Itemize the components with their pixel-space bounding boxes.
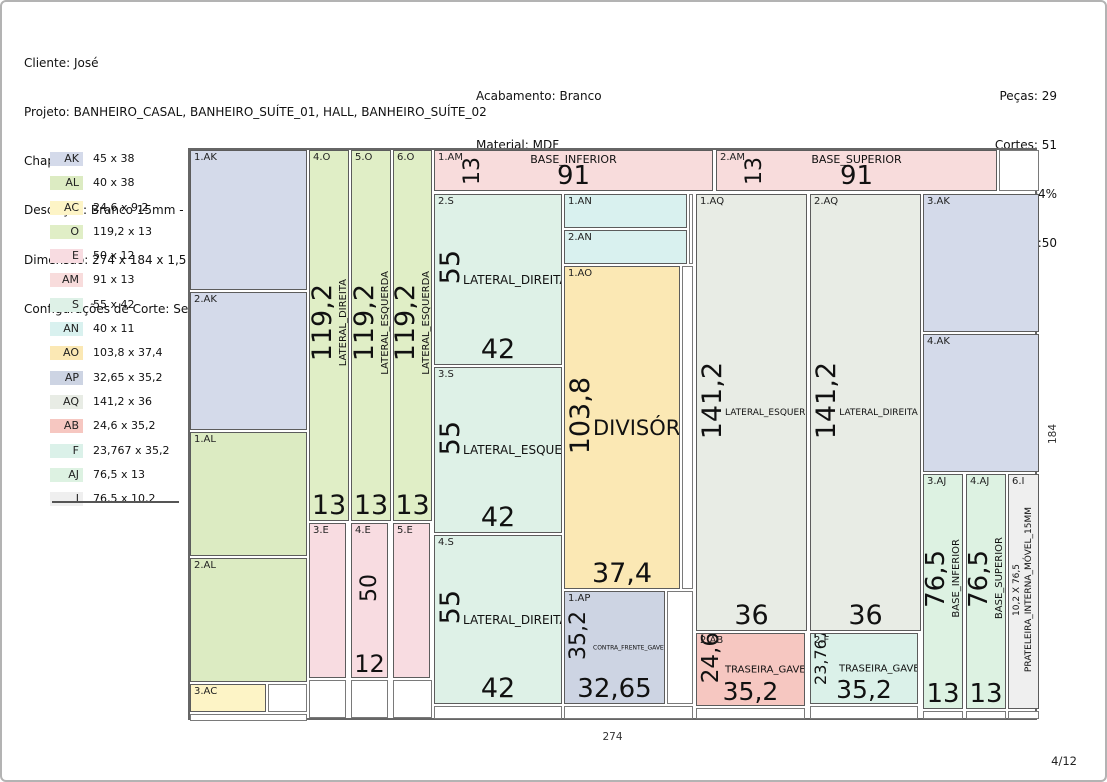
rotated-label: 119,2	[393, 284, 420, 361]
piece-code: 1.AO	[568, 268, 592, 279]
piece-code: 1.AL	[194, 434, 216, 445]
legend-swatch-o: O	[50, 225, 83, 239]
pieces-count-line: Peças: 29	[880, 88, 1057, 104]
piece-dim-vertical: 55	[437, 536, 465, 679]
legend-item-ao: AO103,8 x 37,4	[50, 346, 169, 370]
piece-5-e: 5.E	[393, 523, 430, 678]
piece-code: 2.AK	[194, 294, 217, 305]
piece-dim-vertical: 103,8	[567, 267, 595, 564]
legend-dims-e: 50 x 12	[93, 249, 135, 263]
piece-code: 2.S	[438, 196, 454, 207]
piece-code: 5.O	[355, 152, 372, 163]
legend-item-al: AL40 x 38	[50, 176, 169, 200]
legend-dims-aq: 141,2 x 36	[93, 395, 152, 409]
piece-name-label: CONTRA_FRENTE_GAVETA	[593, 644, 662, 651]
legend-item-e: E50 x 12	[50, 249, 169, 273]
piece-code: 4.AK	[927, 336, 950, 347]
piece-dim-vertical: 55	[437, 368, 465, 508]
piece-code: 3.AC	[194, 686, 217, 697]
piece-1-aq: 1.AQ141,2LATERAL_ESQUERDA36	[696, 194, 807, 631]
piece-1-am: 1.AM13BASE_INFERIOR91	[434, 150, 713, 191]
legend-item-aj: AJ76,5 x 13	[50, 468, 169, 492]
rotated-label: PRATELEIRA_INTERNA_MÓVEL_15MM	[1025, 507, 1034, 672]
rotated-label: 50	[358, 574, 381, 602]
piece-name-label: LATERAL_DIREITA	[463, 613, 559, 627]
piece-code: 6.O	[397, 152, 414, 163]
piece-name-label: LATERAL_DIREITA	[463, 273, 559, 287]
piece-code: 1.AQ	[700, 196, 724, 207]
waste-region	[682, 266, 693, 589]
legend-dims-i: 76,5 x 10,2	[93, 492, 156, 506]
piece-dim-bottom: 13	[967, 681, 1005, 708]
legend-item-ab: AB24,6 x 35,2	[50, 419, 169, 443]
rotated-label: 13	[743, 157, 766, 185]
piece-vertical-labels: 119,2LATERAL_ESQUERDA	[352, 151, 390, 494]
legend-swatch-aq: AQ	[50, 395, 83, 409]
piece-1-an: 1.AN	[564, 194, 687, 228]
piece-code: 1.AK	[194, 152, 217, 163]
legend-dims-f: 23,767 x 35,2	[93, 444, 169, 458]
piece-code: 2.AL	[194, 560, 216, 571]
legend: AK45 x 38AL40 x 38AC24,6 x 9,2O119,2 x 1…	[50, 152, 169, 516]
waste-region	[393, 680, 432, 718]
piece-vertical-labels: 119,2LATERAL_DIREITA	[310, 151, 348, 494]
piece-code: 3.E	[313, 525, 329, 536]
piece-3-aj: 3.AJ76,5BASE_INFERIOR13	[923, 474, 963, 709]
rotated-label: 141,2	[813, 362, 841, 439]
piece-name-label: TRASEIRA_GAVETA	[725, 664, 802, 675]
legend-underline	[52, 501, 179, 503]
legend-swatch-s: S	[50, 298, 83, 312]
legend-dims-ak: 45 x 38	[93, 152, 135, 166]
piece-code: 3.S	[438, 369, 454, 380]
piece-code: 3.AJ	[927, 476, 946, 487]
legend-item-o: O119,2 x 13	[50, 225, 169, 249]
rotated-label: 119,2	[309, 284, 337, 361]
rotated-label: 76,5	[966, 550, 993, 608]
waste-region	[268, 684, 307, 712]
piece-dim-vertical: 141,2	[813, 195, 841, 606]
piece-3-ac: 3.AC	[190, 684, 266, 712]
piece-3-ak: 3.AK	[923, 194, 1039, 332]
rotated-label: LATERAL_DIREITA	[339, 279, 349, 366]
piece-code: 2.AB	[700, 635, 723, 646]
legend-item-ap: AP32,65 x 35,2	[50, 371, 169, 395]
piece-3-s: 3.S55LATERAL_ESQUERDA42	[434, 367, 562, 533]
legend-item-s: S55 x 42	[50, 298, 169, 322]
legend-item-ac: AC24,6 x 9,2	[50, 201, 169, 225]
piece-4-aj: 4.AJ76,5BASE_SUPERIOR13	[966, 474, 1006, 709]
piece-2-an: 2.AN	[564, 230, 687, 264]
rotated-label: 103,8	[567, 377, 595, 454]
legend-swatch-f: F	[50, 444, 83, 458]
piece-dim-bottom: 13	[394, 492, 431, 520]
legend-dims-ao: 103,8 x 37,4	[93, 346, 163, 360]
rotated-label: 141,2	[699, 362, 727, 439]
legend-swatch-ab: AB	[50, 419, 83, 433]
piece-dim-bottom: 13	[924, 681, 962, 708]
legend-dims-an: 40 x 11	[93, 322, 135, 336]
piece-2-ak: 2.AK	[190, 292, 307, 430]
legend-dims-al: 40 x 38	[93, 176, 135, 190]
rotated-label: 35,2	[567, 611, 590, 660]
legend-item-aq: AQ141,2 x 36	[50, 395, 169, 419]
piece-vertical-labels: 76,5BASE_SUPERIOR	[967, 475, 1005, 682]
finish-line: Acabamento: Branco	[476, 88, 602, 104]
piece-code: 4.E	[355, 525, 371, 536]
piece-2-ab: 2.AB24,6TRASEIRA_GAVETA35,2	[696, 633, 805, 706]
piece-dim-bottom: 12	[352, 652, 387, 677]
piece-1-ao: 1.AO103,8DIVISÓRIA37,4	[564, 266, 680, 589]
piece-code: 4.S	[438, 537, 454, 548]
piece-4-s: 4.S55LATERAL_DIREITA42	[434, 535, 562, 704]
legend-swatch-ap: AP	[50, 371, 83, 385]
waste-region	[667, 591, 693, 704]
piece-name-label: LATERAL_ESQUERDA	[725, 408, 804, 418]
waste-region	[966, 711, 1006, 719]
piece-code: 2.AN	[568, 232, 592, 243]
piece-6-i: 6.I10,2 X 76,5PRATELEIRA_INTERNA_MÓVEL_1…	[1008, 474, 1039, 709]
waste-region	[351, 680, 388, 718]
piece-vertical-labels: 50	[352, 524, 387, 651]
piece-name-label: DIVISÓRIA	[593, 416, 677, 440]
legend-swatch-al: AL	[50, 176, 83, 190]
client-line: Cliente: José	[24, 55, 487, 71]
piece-name-label: LATERAL_DIREITA	[839, 408, 918, 418]
rotated-label: 55	[437, 250, 465, 284]
piece-code: 3.AK	[927, 196, 950, 207]
rotated-label: 55	[437, 590, 465, 624]
waste-region	[923, 711, 963, 719]
legend-item-ak: AK45 x 38	[50, 152, 169, 176]
piece-2-s: 2.S55LATERAL_DIREITA42	[434, 194, 562, 365]
page-indicator: 4/12	[1051, 754, 1077, 768]
waste-region	[309, 680, 346, 718]
piece-dim-vertical: 55	[437, 195, 465, 340]
piece-dim-vertical: 13	[743, 151, 766, 190]
piece-1-ak: 1.AK	[190, 150, 307, 290]
piece-4-e: 4.E5012	[351, 523, 388, 678]
waste-region	[1008, 711, 1039, 719]
legend-dims-o: 119,2 x 13	[93, 225, 152, 239]
piece-code: 1.AN	[568, 196, 592, 207]
waste-region	[190, 714, 307, 721]
piece-code: 1.AM	[438, 152, 463, 163]
piece-2-aq: 2.AQ141,2LATERAL_DIREITA36	[810, 194, 921, 631]
rotated-label: LATERAL_ESQUERDA	[422, 271, 432, 375]
sheet-diagram: 1.AK2.AK1.AL2.AL3.AC4.O119,2LATERAL_DIRE…	[188, 148, 1037, 720]
piece-3-e: 3.E	[309, 523, 346, 678]
piece-dim-bottom: 13	[310, 492, 348, 520]
legend-dims-aj: 76,5 x 13	[93, 468, 145, 482]
legend-dims-s: 55 x 42	[93, 298, 135, 312]
legend-swatch-aj: AJ	[50, 468, 83, 482]
legend-swatch-ao: AO	[50, 346, 83, 360]
piece-1-al: 1.AL	[190, 432, 307, 556]
legend-item-am: AM91 x 13	[50, 273, 169, 297]
piece-code: 1.AP	[568, 593, 590, 604]
piece-vertical-labels: 10,2 X 76,5PRATELEIRA_INTERNA_MÓVEL_15MM	[1009, 475, 1038, 704]
legend-swatch-an: AN	[50, 322, 83, 336]
piece-name-label: LATERAL_ESQUERDA	[463, 443, 559, 457]
legend-dims-ac: 24,6 x 9,2	[93, 201, 149, 215]
rotated-label: 76,5	[923, 550, 950, 608]
piece-vertical-labels: 76,5BASE_INFERIOR	[924, 475, 962, 682]
piece-5-o: 5.O119,2LATERAL_ESQUERDA13	[351, 150, 391, 521]
sheet-height-label: 184	[1046, 148, 1062, 720]
piece-1-ap: 1.AP35,2CONTRA_FRENTE_GAVETA32,65	[564, 591, 665, 704]
legend-item-f: F23,767 x 35,2	[50, 444, 169, 468]
sheet-width-label: 274	[188, 731, 1037, 743]
project-line: Projeto: BANHEIRO_CASAL, BANHEIRO_SUÍTE_…	[24, 104, 487, 120]
piece-2-am: 2.AM13BASE_SUPERIOR91	[716, 150, 997, 191]
rotated-label: 119,2	[351, 284, 379, 361]
legend-swatch-ak: AK	[50, 152, 83, 166]
legend-item-an: AN40 x 11	[50, 322, 169, 346]
waste-region	[696, 708, 805, 719]
piece-dim-vertical: 141,2	[699, 195, 727, 606]
rotated-label: LATERAL_ESQUERDA	[381, 271, 391, 375]
piece-name-label: TRASEIRA_GAVETA	[839, 663, 915, 674]
piece-dim-vertical: 35,2	[567, 592, 590, 679]
waste-region	[689, 194, 693, 264]
piece-code: 4.AJ	[970, 476, 989, 487]
piece-code: 2.AM	[720, 152, 745, 163]
piece-code: 2.AQ	[814, 196, 838, 207]
rotated-label: 10,2 X 76,5	[1013, 564, 1022, 616]
piece-vertical-labels: 119,2LATERAL_ESQUERDA	[394, 151, 431, 494]
piece-code: 5.E	[397, 525, 413, 536]
legend-dims-ap: 32,65 x 35,2	[93, 371, 163, 385]
legend-item-i: I76,5 x 10,2	[50, 492, 169, 516]
piece-2-al: 2.AL	[190, 558, 307, 682]
piece-dim-vertical: 13	[461, 151, 484, 190]
rotated-label: 55	[437, 421, 465, 455]
piece-4-ak: 4.AK	[923, 334, 1039, 472]
piece-code: 4.O	[313, 152, 330, 163]
legend-dims-am: 91 x 13	[93, 273, 135, 287]
waste-region	[810, 706, 918, 719]
legend-swatch-ac: AC	[50, 201, 83, 215]
waste-region	[999, 150, 1039, 191]
piece-6-o: 6.O119,2LATERAL_ESQUERDA13	[393, 150, 432, 521]
piece-4-o: 4.O119,2LATERAL_DIREITA13	[309, 150, 349, 521]
piece-code: 6.I	[1012, 476, 1025, 487]
piece-code: 2.F	[814, 635, 829, 646]
legend-swatch-e: E	[50, 249, 83, 263]
cut-plan-report-page: Cliente: José Projeto: BANHEIRO_CASAL, B…	[0, 0, 1107, 782]
piece-2-f: 2.F23,767TRASEIRA_GAVETA35,2	[810, 633, 918, 704]
legend-dims-ab: 24,6 x 35,2	[93, 419, 156, 433]
rotated-label: BASE_SUPERIOR	[995, 537, 1006, 619]
rotated-label: 13	[461, 157, 484, 185]
waste-region	[434, 706, 562, 719]
legend-swatch-am: AM	[50, 273, 83, 287]
waste-region	[564, 706, 693, 719]
legend-swatch-i: I	[50, 492, 83, 506]
rotated-label: BASE_INFERIOR	[952, 539, 963, 618]
piece-dim-bottom: 32,65	[565, 676, 664, 703]
piece-dim-bottom: 13	[352, 492, 390, 520]
